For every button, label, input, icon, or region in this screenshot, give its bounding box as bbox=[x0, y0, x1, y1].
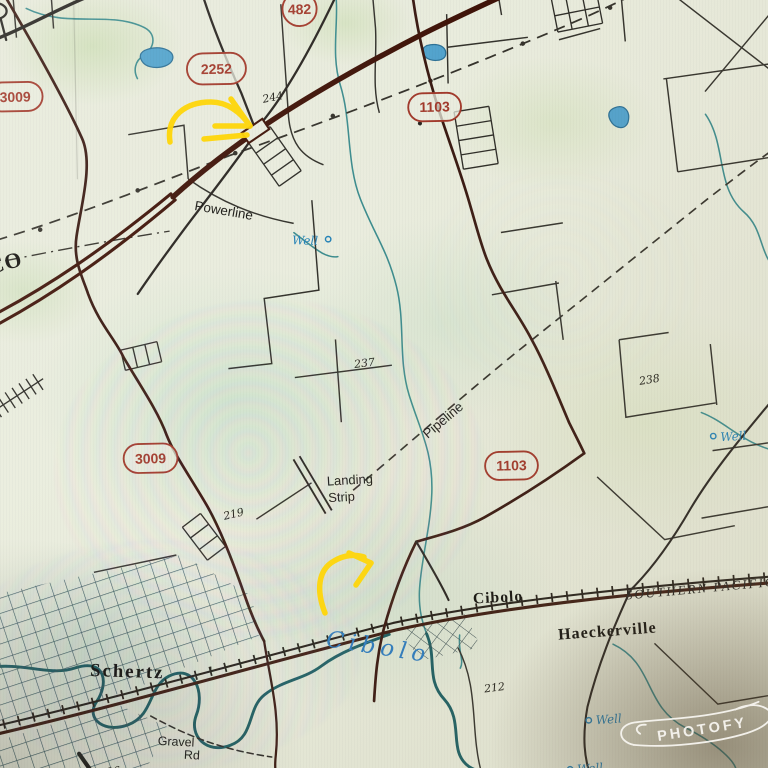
shield-number: 1103 bbox=[419, 98, 450, 115]
route-shield-2252: 2252 bbox=[187, 53, 247, 85]
road-corner-nw bbox=[0, 0, 112, 47]
well-icon bbox=[325, 236, 330, 241]
pipeline-route bbox=[346, 146, 768, 490]
well-label-north: Well bbox=[292, 233, 319, 248]
divided-highway bbox=[0, 0, 549, 333]
map-labels: CO Powerline Pipeline Landing Strip Grav… bbox=[0, 79, 768, 768]
pond-icon bbox=[140, 48, 173, 68]
railroad-label: SOUTHERN PACIFIC bbox=[625, 574, 768, 603]
shield-number: 1103 bbox=[496, 457, 527, 474]
spot-elevation-244: 244 bbox=[260, 89, 284, 106]
spot-elevation-237: 237 bbox=[352, 356, 375, 372]
spot-elevation-212: 212 bbox=[482, 680, 505, 696]
spot-elevation-238: 238 bbox=[637, 372, 661, 388]
route-shield-3009-north: 3009 bbox=[0, 82, 43, 112]
shield-number: 3009 bbox=[0, 89, 31, 106]
well-label-south: Well bbox=[595, 711, 622, 727]
loop-road bbox=[0, 3, 7, 19]
haeckerville-label: Haeckerville bbox=[558, 619, 658, 643]
photo-fold-line bbox=[74, 0, 78, 179]
cibolo-town-label: Cibolo bbox=[473, 588, 524, 608]
schertz-label: Schertz bbox=[90, 660, 165, 683]
shield-number: 2252 bbox=[201, 61, 233, 78]
route-shield-1103-south: 1103 bbox=[485, 451, 538, 480]
well-label-east: Well bbox=[720, 429, 747, 444]
spot-elevation-219: 219 bbox=[221, 505, 245, 523]
gravel-road-label-line2: Rd bbox=[184, 748, 201, 763]
county-label: CO bbox=[0, 247, 25, 279]
route-shield-3009-south: 3009 bbox=[123, 443, 177, 473]
well-icon bbox=[586, 718, 591, 723]
route-shield-1103-north: 1103 bbox=[408, 93, 461, 122]
pond-icon bbox=[423, 44, 446, 60]
well-markers bbox=[325, 228, 722, 768]
well-label-far-south: Well bbox=[577, 760, 604, 768]
topo-map-photo: 482 2252 3009 1103 3009 1103 bbox=[0, 0, 768, 768]
interchange-symbol bbox=[242, 119, 270, 143]
landing-strip-label-line2: Strip bbox=[328, 489, 355, 505]
map-layer: 482 2252 3009 1103 3009 1103 bbox=[0, 0, 768, 768]
powerline-label: Powerline bbox=[194, 198, 255, 223]
shield-number: 3009 bbox=[135, 450, 167, 467]
road-fm-1103 bbox=[411, 0, 584, 457]
town-grid-schertz bbox=[0, 553, 261, 736]
shield-number: 482 bbox=[288, 1, 312, 17]
pond-icon bbox=[609, 107, 629, 128]
route-shield-482: 482 bbox=[282, 0, 317, 26]
landing-strip-label-line1: Landing bbox=[326, 471, 373, 489]
map-linework: 482 2252 3009 1103 3009 1103 bbox=[0, 0, 768, 768]
pipeline-label: Pipeline bbox=[420, 399, 466, 441]
well-icon bbox=[711, 433, 716, 438]
